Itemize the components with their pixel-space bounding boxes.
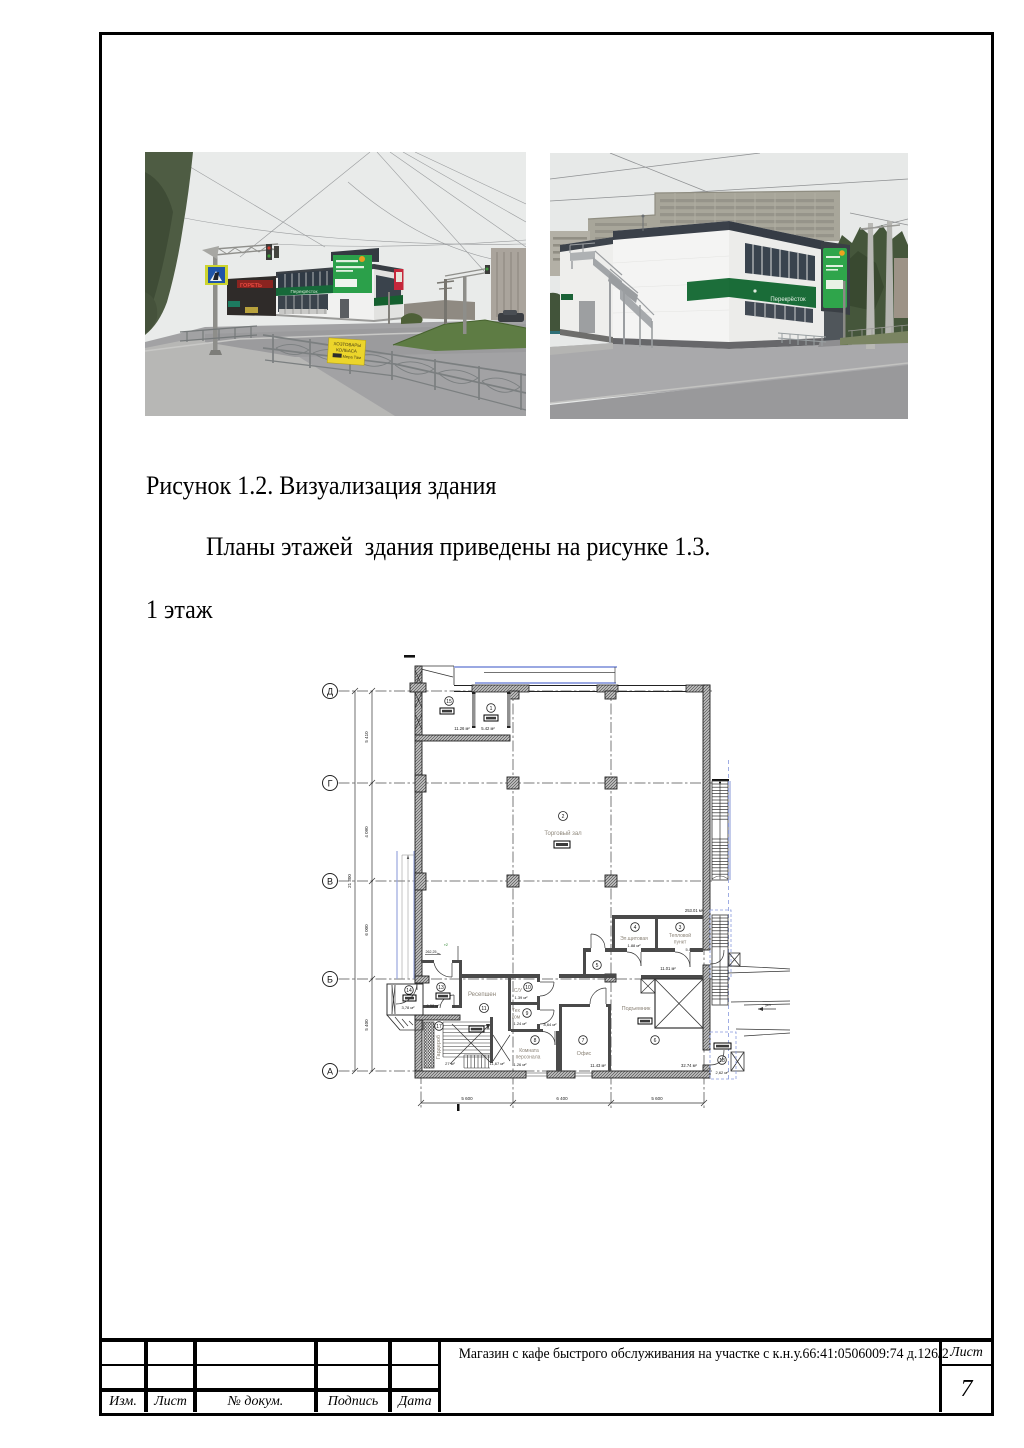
svg-text:1.88 м²: 1.88 м² — [628, 943, 642, 948]
svg-text:4 090: 4 090 — [364, 826, 369, 838]
svg-text:ком: ком — [512, 1015, 521, 1021]
svg-text:2,62 м²: 2,62 м² — [716, 1070, 730, 1075]
svg-text:32.74 м²: 32.74 м² — [681, 1063, 698, 1068]
svg-text:т2: т2 — [444, 942, 449, 947]
svg-text:Тех: Тех — [512, 1008, 520, 1014]
svg-text:5.42 м²: 5.42 м² — [481, 726, 495, 731]
svg-text:9: 9 — [526, 1011, 529, 1017]
svg-text:пункт: пункт — [674, 940, 687, 946]
svg-text:Гардероб: Гардероб — [436, 1035, 442, 1059]
svg-text:Торговый зал: Торговый зал — [544, 830, 582, 837]
svg-text:Тепловой: Тепловой — [669, 932, 691, 939]
svg-text:21 300: 21 300 — [347, 874, 352, 888]
svg-text:5 400: 5 400 — [364, 1019, 369, 1031]
svg-text:11.01 м²: 11.01 м² — [660, 966, 676, 971]
svg-text:Перекрёсток: Перекрёсток — [291, 289, 319, 294]
svg-text:11: 11 — [481, 1006, 486, 1012]
svg-text:Офис: Офис — [577, 1051, 592, 1057]
svg-text:Г: Г — [328, 779, 333, 789]
svg-text:укл: укл — [765, 1003, 771, 1007]
svg-text:7: 7 — [582, 1038, 585, 1044]
svg-text:2: 2 — [562, 814, 565, 820]
svg-text:11.26 м²: 11.26 м² — [454, 726, 470, 731]
svg-text:1.24 м²: 1.24 м² — [514, 1021, 528, 1026]
svg-text:6: 6 — [654, 1038, 657, 1044]
svg-text:14: 14 — [406, 988, 412, 994]
svg-text:253.01 м²: 253.01 м² — [685, 908, 704, 913]
svg-text:1.39 м²: 1.39 м² — [515, 995, 529, 1000]
svg-text:ГОРЕТЬ: ГОРЕТЬ — [240, 283, 262, 289]
svg-text:11,67 м²: 11,67 м² — [490, 1061, 506, 1066]
svg-text:5 600: 5 600 — [651, 1096, 663, 1101]
svg-text:13: 13 — [438, 985, 444, 991]
svg-text:Б: Б — [327, 975, 333, 985]
svg-text:11.43 м²: 11.43 м² — [590, 1063, 606, 1068]
svg-text:8: 8 — [534, 1038, 537, 1044]
svg-text:5: 5 — [596, 963, 599, 969]
svg-text:С/У: С/У — [514, 988, 523, 994]
svg-text:17: 17 — [436, 1024, 442, 1030]
svg-text:Эл.щитовая: Эл.щитовая — [620, 936, 648, 942]
svg-text:А: А — [327, 1067, 333, 1077]
svg-text:Перекрёсток: Перекрёсток — [770, 297, 806, 303]
svg-text:8,64 м²: 8,64 м² — [544, 1022, 558, 1027]
svg-text:Ресепшен: Ресепшен — [468, 992, 496, 998]
svg-text:6 000: 6 000 — [364, 924, 369, 936]
svg-text:Комната: Комната — [519, 1048, 539, 1054]
svg-text:5 600: 5 600 — [461, 1096, 473, 1101]
svg-text:6.58 м²: 6.58 м² — [427, 1003, 441, 1008]
svg-text:6 400: 6 400 — [556, 1096, 568, 1101]
svg-text:3,78 м²: 3,78 м² — [402, 1005, 416, 1010]
svg-text:3: 3 — [679, 925, 682, 931]
svg-text:1: 1 — [490, 706, 493, 712]
svg-text:262,25: 262,25 — [426, 950, 437, 954]
svg-text:В: В — [327, 877, 333, 887]
svg-text:5 410: 5 410 — [364, 731, 369, 743]
svg-text:15: 15 — [446, 699, 452, 705]
svg-text:Д: Д — [327, 687, 333, 697]
svg-text:1.26 м²: 1.26 м² — [514, 1062, 528, 1067]
svg-text:10: 10 — [525, 985, 531, 991]
svg-text:Подъемник: Подъемник — [622, 1006, 651, 1012]
svg-text:персонала: персонала — [516, 1055, 541, 1061]
svg-text:4: 4 — [634, 925, 637, 931]
